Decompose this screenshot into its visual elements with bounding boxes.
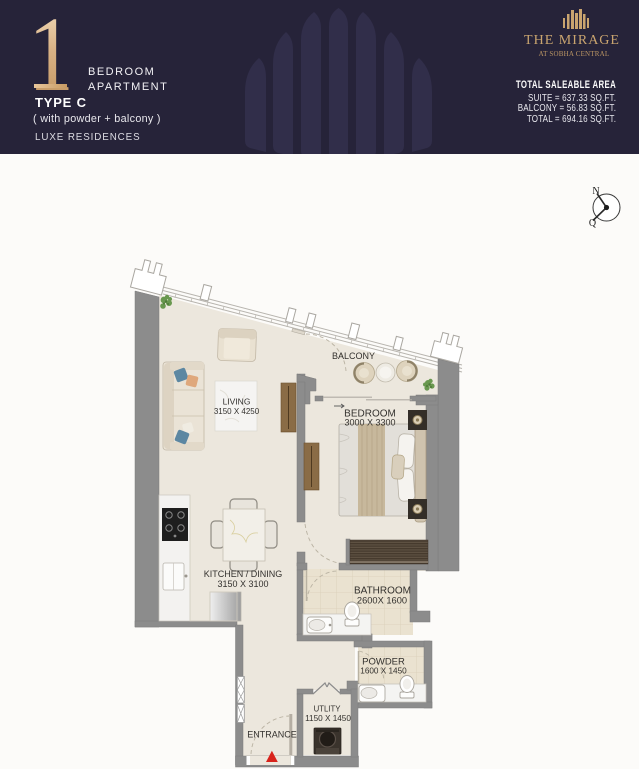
svg-text:KITCHEN / DINING: KITCHEN / DINING bbox=[204, 569, 283, 579]
svg-text:3000 X 3300: 3000 X 3300 bbox=[344, 418, 395, 428]
svg-text:3150 X 3100: 3150 X 3100 bbox=[217, 579, 268, 589]
svg-text:LIVING: LIVING bbox=[223, 397, 251, 407]
svg-text:N: N bbox=[592, 186, 599, 197]
svg-text:UTLITY: UTLITY bbox=[314, 705, 342, 714]
svg-text:2600X 1600: 2600X 1600 bbox=[357, 596, 407, 606]
svg-text:Q: Q bbox=[589, 218, 597, 229]
svg-text:1150 X 1450: 1150 X 1450 bbox=[305, 714, 351, 723]
svg-text:3150 X 4250: 3150 X 4250 bbox=[214, 407, 260, 416]
svg-text:ENTRANCE: ENTRANCE bbox=[247, 730, 297, 740]
svg-text:BALCONY: BALCONY bbox=[332, 351, 375, 361]
svg-text:1600 X 1450: 1600 X 1450 bbox=[360, 667, 407, 676]
